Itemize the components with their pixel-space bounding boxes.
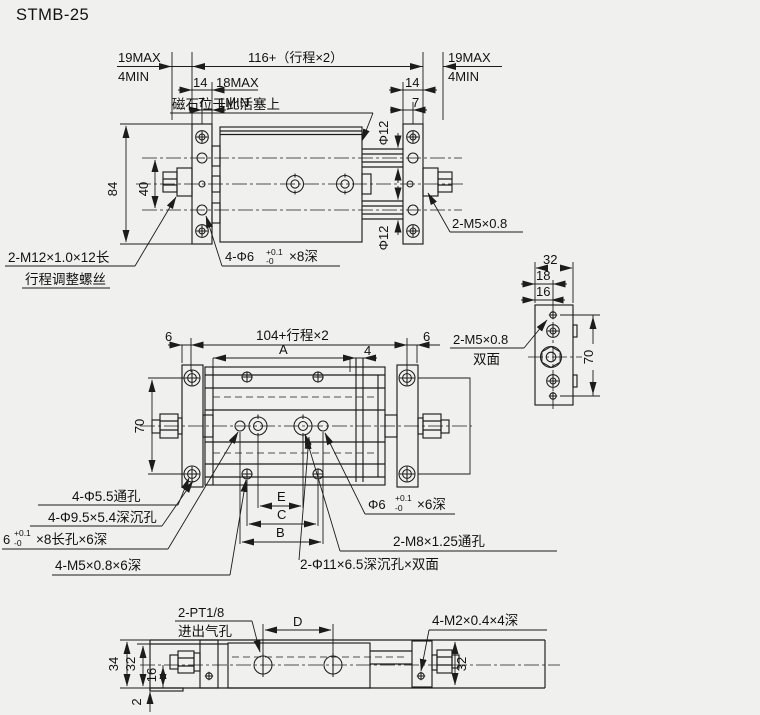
front-centerlines xyxy=(136,158,466,210)
bottom-left-plate xyxy=(200,640,218,688)
note-phi11: 2-Φ11×6.5深沉孔×双面 xyxy=(300,557,439,572)
note-m12-line2: 行程调整螺丝 xyxy=(25,272,106,287)
note-m8: 2-M8×1.25通孔 xyxy=(393,534,485,549)
note-phi55: 4-Φ5.5通孔 xyxy=(72,489,141,504)
note-slot: 6 +0.1 -0 ×8长孔×6深 xyxy=(3,528,107,548)
dim-4min-right: 4MIN xyxy=(448,69,479,84)
dim-E: E xyxy=(277,489,286,504)
note-phi95: 4-Φ9.5×5.4深沉孔 xyxy=(48,510,157,525)
note-pt-line1: 2-PT1/8 xyxy=(178,605,224,620)
front-view: 19MAX 4MIN 14 7 18MAX 1MIN 116+（行程×2） 19… xyxy=(5,50,523,288)
svg-text:×6深: ×6深 xyxy=(417,497,446,512)
dim-4min-left: 4MIN xyxy=(118,69,149,84)
note-both-sides: 双面 xyxy=(473,352,500,367)
dim-84: 84 xyxy=(105,182,120,196)
dim-18max: 18MAX xyxy=(216,75,259,90)
dim-6-left: 6 xyxy=(165,329,172,344)
plan-hidden-lines xyxy=(213,397,378,453)
side-view: 32 18 16 70 2-M5×0.8 双面 xyxy=(450,252,600,412)
bottom-plate-holes xyxy=(205,672,425,680)
dim-D: D xyxy=(293,614,302,629)
dim-C: C xyxy=(277,507,286,522)
front-left-adjust-screw xyxy=(163,168,192,196)
svg-text:+0.1: +0.1 xyxy=(14,528,31,538)
dim-4: 4 xyxy=(364,343,371,358)
svg-text:4-Φ6: 4-Φ6 xyxy=(225,249,254,264)
dim-18: 18 xyxy=(536,268,550,283)
note-m5-front: 2-M5×0.8 xyxy=(452,216,507,231)
dim-19max-left: 19MAX xyxy=(118,50,161,65)
bottom-body xyxy=(228,643,370,688)
dim-B: B xyxy=(276,525,285,540)
dim-32-bottom-left: 32 xyxy=(123,657,138,671)
note-phi6-depth8: 4-Φ6 +0.1 -0 ×8深 xyxy=(225,247,318,266)
dim-phi12-top: Φ12 xyxy=(376,121,391,146)
dim-32-side: 32 xyxy=(543,252,557,267)
dim-14-right: 14 xyxy=(405,75,419,90)
dim-phi12-bottom: Φ12 xyxy=(376,226,391,251)
dim-70-side: 70 xyxy=(581,350,596,364)
note-m5-plan: 4-M5×0.8×6深 xyxy=(55,558,141,573)
front-cylinder-body xyxy=(212,127,371,242)
bottom-view: 34 32 16 2 D 32 2-PT1/8 进出气孔 4-M2×0.4×4深 xyxy=(106,605,560,712)
dim-7-right: 7 xyxy=(412,95,419,110)
note-m12-line1: 2-M12×1.0×12长 xyxy=(8,250,110,265)
svg-text:-0: -0 xyxy=(266,256,274,266)
dim-70-plan: 70 xyxy=(132,419,147,433)
svg-text:6: 6 xyxy=(3,532,10,547)
dim-19max-right: 19MAX xyxy=(448,50,491,65)
dim-40: 40 xyxy=(136,182,151,196)
plan-dim-lines xyxy=(148,338,440,544)
svg-text:-0: -0 xyxy=(14,538,22,548)
technical-drawing-canvas: STMB-25 xyxy=(0,0,760,715)
dim-14-left: 14 xyxy=(193,75,207,90)
dim-2: 2 xyxy=(129,698,144,705)
svg-text:Φ6: Φ6 xyxy=(368,497,386,512)
note-pt-line2: 进出气孔 xyxy=(178,624,232,639)
cylinder-drawing-svg: STMB-25 xyxy=(0,0,760,715)
front-body-holes xyxy=(287,174,354,195)
note-m5-side: 2-M5×0.8 xyxy=(453,332,508,347)
svg-text:+0.1: +0.1 xyxy=(395,493,412,503)
plan-body xyxy=(203,358,397,485)
dim-34: 34 xyxy=(106,657,121,671)
dim-104-stroke: 104+行程×2 xyxy=(256,328,329,343)
bottom-rod xyxy=(370,651,412,664)
note-magnet: 磁石位于此活塞上 xyxy=(172,96,280,112)
bottom-left-screw xyxy=(170,651,200,673)
note-m2: 4-M2×0.4×4深 xyxy=(432,613,518,628)
front-right-adjust-screw xyxy=(423,168,452,196)
svg-text:×8深: ×8深 xyxy=(289,249,318,264)
dim-16-side: 16 xyxy=(536,284,550,299)
dim-16-bottom: 16 xyxy=(144,668,159,682)
svg-text:-0: -0 xyxy=(395,503,403,513)
svg-text:×8长孔×6深: ×8长孔×6深 xyxy=(36,532,107,547)
drawing-title: STMB-25 xyxy=(16,6,89,24)
bottom-table xyxy=(150,640,545,691)
dim-A: A xyxy=(279,342,288,357)
dim-6-right: 6 xyxy=(423,329,430,344)
side-plate xyxy=(535,305,577,405)
note-phi6-depth6: Φ6 +0.1 -0 ×6深 xyxy=(368,493,446,513)
dim-32-bottom-right: 32 xyxy=(454,657,469,671)
dim-116-stroke: 116+（行程×2） xyxy=(248,50,343,65)
